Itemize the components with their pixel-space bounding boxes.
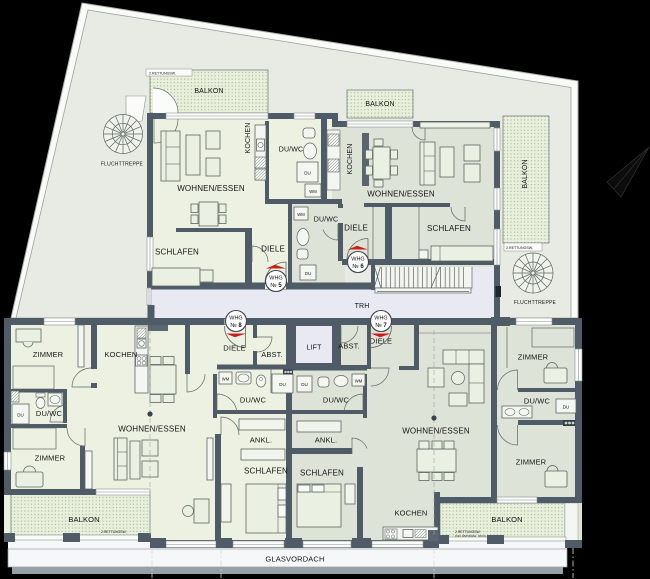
svg-text:DIELE: DIELE (261, 245, 285, 254)
svg-text:FLUCHTTREPPE: FLUCHTTREPPE (101, 162, 144, 168)
svg-text:DU/WC: DU/WC (323, 396, 350, 405)
svg-text:ABST.: ABST. (338, 342, 360, 351)
svg-text:DIELE: DIELE (370, 337, 392, 346)
svg-text:FLUCHTTREPPE: FLUCHTTREPPE (514, 300, 557, 306)
svg-text:2.RETTUNGSW.: 2.RETTUNGSW. (101, 530, 126, 534)
svg-text:TRH: TRH (355, 303, 370, 310)
svg-text:2.RETTUNGSW.: 2.RETTUNGSW. (455, 530, 480, 534)
svg-text:WOHNEN/ESSEN: WOHNEN/ESSEN (402, 427, 470, 436)
svg-text:№ 7: № 7 (375, 322, 387, 329)
svg-text:KOCHEN: KOCHEN (347, 144, 354, 175)
svg-text:BALKON: BALKON (491, 515, 522, 524)
svg-text:№ 6: № 6 (352, 263, 364, 270)
svg-text:DU/WC: DU/WC (524, 397, 551, 406)
svg-text:ZIMMER: ZIMMER (35, 454, 66, 463)
svg-text:WHG: WHG (229, 316, 242, 322)
svg-text:DU: DU (304, 171, 311, 176)
svg-text:DU/WC: DU/WC (240, 396, 267, 405)
svg-text:KOCHEN: KOCHEN (105, 350, 138, 359)
svg-text:DU/WC: DU/WC (314, 217, 338, 224)
svg-text:WOHNEN/ESSEN: WOHNEN/ESSEN (367, 190, 435, 199)
svg-text:ANKL.: ANKL. (315, 436, 337, 445)
svg-text:LIFT: LIFT (307, 345, 323, 352)
svg-text:SCHLAFEN: SCHLAFEN (155, 248, 199, 257)
svg-text:DU/WC: DU/WC (36, 409, 63, 418)
svg-text:BALKON: BALKON (194, 88, 223, 95)
svg-text:DU: DU (563, 405, 570, 410)
svg-text:DU: DU (305, 271, 312, 276)
svg-text:SCHLAFEN: SCHLAFEN (300, 469, 344, 478)
svg-text:DU/WC: DU/WC (279, 147, 303, 154)
svg-text:BALKON: BALKON (365, 101, 394, 108)
svg-text:WM: WM (297, 212, 305, 217)
svg-text:GLASVORDACH: GLASVORDACH (265, 555, 324, 564)
svg-text:WHG: WHG (351, 257, 364, 263)
svg-text:WM: WM (355, 379, 363, 384)
svg-text:WOHNEN/ESSEN: WOHNEN/ESSEN (118, 425, 186, 434)
svg-text:DU: DU (17, 413, 24, 418)
svg-text:2.RETTUNGSW.: 2.RETTUNGSW. (506, 246, 533, 250)
svg-text:WOHNEN/ESSEN: WOHNEN/ESSEN (177, 184, 245, 193)
svg-text:ABST.: ABST. (261, 350, 283, 359)
svg-text:DIELE: DIELE (344, 224, 368, 233)
svg-text:KOCHEN: KOCHEN (395, 509, 428, 518)
svg-text:WM: WM (309, 189, 317, 194)
svg-text:WHG: WHG (269, 276, 282, 282)
svg-text:ZIMMER: ZIMMER (518, 353, 549, 362)
svg-text:DU: DU (279, 382, 286, 387)
svg-text:2.RETTUNGSW.: 2.RETTUNGSW. (149, 72, 176, 76)
svg-text:BALKON: BALKON (522, 159, 529, 188)
svg-text:ZIMMER: ZIMMER (516, 458, 547, 467)
svg-text:KOCHEN: KOCHEN (245, 123, 252, 154)
svg-text:WHG: WHG (374, 316, 387, 322)
svg-text:№ 5: № 5 (270, 282, 282, 289)
svg-text:ZIMMER: ZIMMER (33, 350, 64, 359)
svg-text:№ 8: № 8 (230, 322, 242, 329)
svg-text:SCHLAFEN: SCHLAFEN (427, 224, 471, 233)
svg-text:BALKON: BALKON (68, 515, 99, 524)
svg-text:WM: WM (222, 377, 230, 382)
svg-text:SCHLAFEN: SCHLAFEN (244, 467, 288, 476)
svg-text:DU: DU (301, 382, 308, 387)
svg-text:ANKL.: ANKL. (250, 436, 272, 445)
